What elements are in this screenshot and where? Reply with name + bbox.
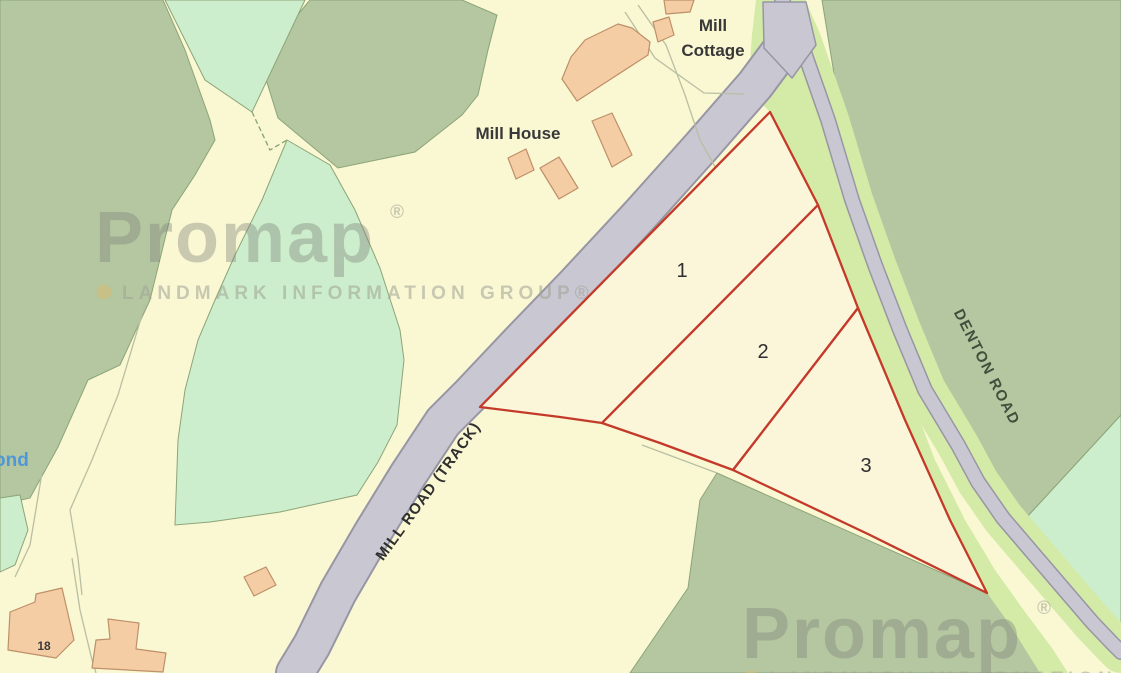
label-pond-fragment: ond bbox=[0, 450, 29, 471]
building-small-track-side bbox=[244, 567, 276, 596]
promap-map: Mill Cottage Mill House ond 18 1 2 3 MIL… bbox=[0, 0, 1121, 673]
watermark-tagline: LANDMARK INFORMATION GROUP® bbox=[122, 283, 594, 304]
watermark-registered: ® bbox=[1037, 598, 1051, 619]
building-outbuilding-a bbox=[508, 149, 534, 179]
label-mill-house: Mill House bbox=[475, 124, 560, 143]
parcel-3-number: 3 bbox=[860, 455, 871, 477]
watermark-brand: Promap bbox=[742, 594, 1022, 673]
parcel-1-number: 1 bbox=[676, 260, 687, 282]
grass-left-sliver bbox=[0, 495, 28, 572]
woodland-top-middle bbox=[260, 0, 497, 168]
label-house-number-18: 18 bbox=[37, 639, 51, 653]
building-outbuilding-b bbox=[540, 157, 578, 199]
building-mill-house-annex bbox=[653, 17, 674, 42]
watermark-tagline: LANDMARK INFORMATION GROUP® bbox=[769, 669, 1121, 673]
building-mill-house-barn bbox=[592, 113, 632, 167]
building-mill-house-main bbox=[562, 24, 650, 101]
building-bottom-left bbox=[92, 619, 166, 672]
field-line-bottom-left bbox=[72, 558, 96, 673]
building-top-edge-partial bbox=[664, 0, 694, 14]
parcel-2-number: 2 bbox=[757, 341, 768, 363]
watermark-registered: ® bbox=[390, 202, 404, 223]
watermark-brand: Promap bbox=[95, 198, 375, 278]
label-mill-cottage-line1: Mill bbox=[699, 16, 727, 35]
label-mill-cottage-line2: Cottage bbox=[681, 41, 744, 60]
dot-icon bbox=[97, 285, 112, 300]
watermark-top-left: Promap ® LANDMARK INFORMATION GROUP® bbox=[95, 198, 594, 304]
map-canvas: Mill Cottage Mill House ond 18 1 2 3 MIL… bbox=[0, 0, 1121, 673]
